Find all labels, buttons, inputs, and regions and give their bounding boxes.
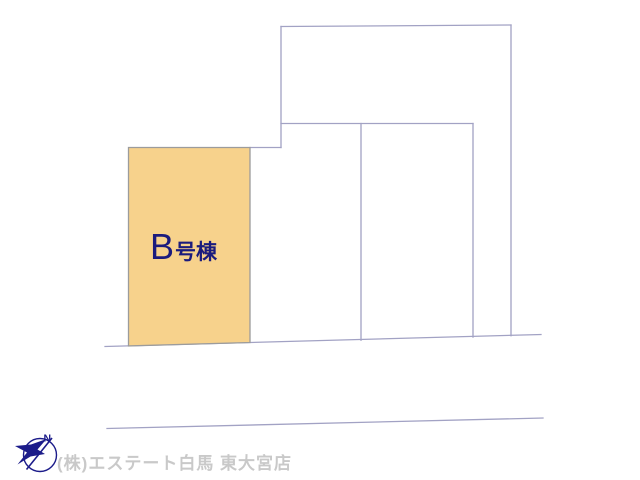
north-compass-icon: N [15, 433, 57, 472]
site-plan-drawing: N [0, 0, 640, 480]
site-plan-canvas: N B号棟 (株)エステート白馬 東大宮店 [0, 0, 640, 480]
parcel-label-suffix: 号棟 [175, 241, 217, 264]
company-watermark: (株)エステート白馬 東大宮店 [57, 449, 292, 474]
road-boundary-lower-line [107, 418, 543, 429]
parcel-label-letter: B [150, 226, 175, 267]
boundary-line-top [281, 25, 511, 27]
parcel-label: B号棟 [150, 229, 217, 265]
compass-north-label: N [44, 433, 52, 445]
